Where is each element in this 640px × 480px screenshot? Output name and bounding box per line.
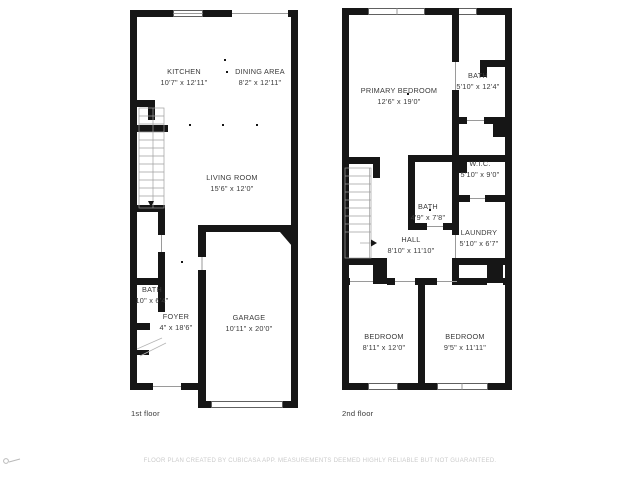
room-label-bath-top: BATH 5'10" x 12'4"	[456, 70, 499, 92]
room-label-garage: GARAGE 10'11" x 20'0"	[225, 312, 272, 334]
room-label-living-room: LIVING ROOM 15'6" x 12'0"	[206, 172, 257, 194]
room-dims: 4'9" x 7'8"	[411, 212, 446, 223]
room-dims: 5'10" x 12'4"	[456, 81, 499, 92]
room-label-bedroom-right: BEDROOM 9'5" x 11'11"	[444, 331, 486, 353]
floor1-stairs-icon	[139, 108, 164, 208]
room-dims: 12'6" x 19'0"	[361, 96, 437, 107]
room-dims: 8'11" x 12'0"	[363, 342, 406, 353]
room-dims: 15'6" x 12'0"	[206, 183, 257, 194]
room-label-kitchen: KITCHEN 10'7" x 12'11"	[160, 66, 207, 88]
room-dims: 10'7" x 12'11"	[160, 77, 207, 88]
room-dims: 5'10" x 9'0"	[461, 169, 500, 180]
room-name: LIVING ROOM	[206, 172, 257, 183]
window-icon	[458, 9, 477, 15]
room-label-dining-area: DINING AREA 8'2" x 12'11"	[235, 66, 285, 88]
room-dims: 4" x 18'6"	[159, 322, 192, 333]
room-label-wic: W.I.C. 5'10" x 9'0"	[461, 158, 500, 180]
room-label-foyer: FOYER 4" x 18'6"	[159, 311, 192, 333]
room-label-primary-bedroom: PRIMARY BEDROOM 12'6" x 19'0"	[361, 85, 437, 107]
disclaimer-text: FLOOR PLAN CREATED BY CUBICASA APP. MEAS…	[0, 458, 640, 464]
garage-door-icon	[212, 402, 283, 408]
room-name: LAUNDRY	[460, 227, 499, 238]
room-label-hall: HALL 8'10" x 11'10"	[387, 234, 434, 256]
room-dims: 8'10" x 11'10"	[387, 245, 434, 256]
room-name: BATH	[135, 284, 168, 295]
room-name: KITCHEN	[160, 66, 207, 77]
window-icon	[369, 384, 398, 390]
room-name: BATH	[456, 70, 499, 81]
floor2-caption: 2nd floor	[342, 409, 373, 418]
room-name: W.I.C.	[461, 158, 500, 169]
room-dims: 5'10" x 6'7"	[460, 238, 499, 249]
room-name: FOYER	[159, 311, 192, 322]
floor-plan-drawing	[0, 0, 640, 480]
room-name: PRIMARY BEDROOM	[361, 85, 437, 96]
floor-plan-canvas: KITCHEN 10'7" x 12'11" DINING AREA 8'2" …	[0, 0, 640, 480]
floor1-caption: 1st floor	[131, 409, 160, 418]
room-dims: 10'11" x 20'0"	[225, 323, 272, 334]
room-label-bath-mid: BATH 4'9" x 7'8"	[411, 201, 446, 223]
room-name: BEDROOM	[363, 331, 406, 342]
room-name: DINING AREA	[235, 66, 285, 77]
room-name: HALL	[387, 234, 434, 245]
room-name: BEDROOM	[444, 331, 486, 342]
room-label-bath-1f: BATH 10" x 6'4"	[135, 284, 168, 306]
room-label-bedroom-left: BEDROOM 8'11" x 12'0"	[363, 331, 406, 353]
stairs-arrow-icon	[371, 240, 377, 247]
room-name: GARAGE	[225, 312, 272, 323]
room-label-laundry: LAUNDRY 5'10" x 6'7"	[460, 227, 499, 249]
floor2-stairs-icon	[345, 168, 377, 258]
room-dims: 8'2" x 12'11"	[235, 77, 285, 88]
room-dims: 10" x 6'4"	[135, 295, 168, 306]
room-dims: 9'5" x 11'11"	[444, 342, 486, 353]
room-name: BATH	[411, 201, 446, 212]
